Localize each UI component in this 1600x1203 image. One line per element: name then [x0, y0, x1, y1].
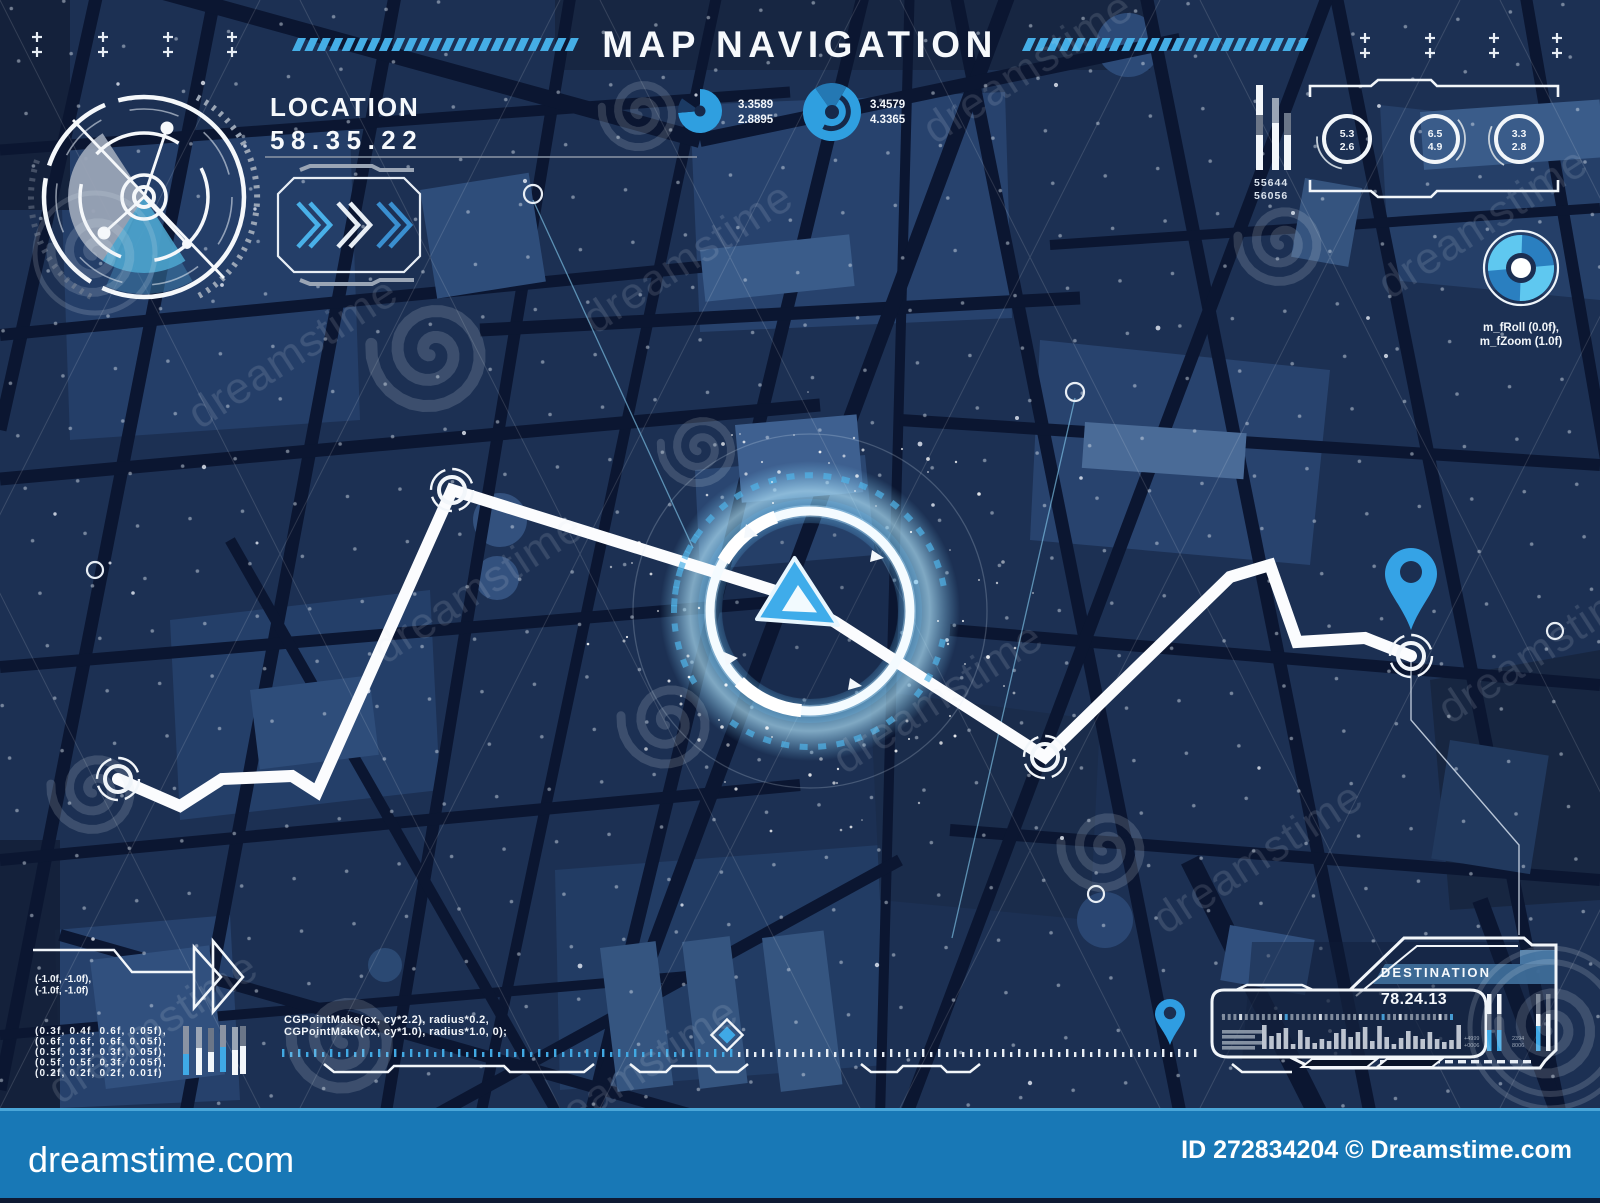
svg-text:3.4579: 3.4579 — [870, 99, 905, 111]
svg-text:(-1.0f, -1.0f): (-1.0f, -1.0f) — [35, 986, 88, 997]
svg-text:6.5: 6.5 — [1428, 128, 1443, 140]
svg-text:2.8895: 2.8895 — [738, 114, 774, 126]
svg-text:4.9: 4.9 — [1428, 141, 1443, 153]
svg-text:m_fZoom (1.0f): m_fZoom (1.0f) — [1480, 336, 1563, 348]
svg-text:58.35.22: 58.35.22 — [270, 125, 423, 155]
svg-text:3.3589: 3.3589 — [738, 99, 773, 111]
svg-text:56056: 56056 — [1254, 190, 1288, 202]
svg-text:MAP NAVIGATION: MAP NAVIGATION — [602, 24, 998, 65]
svg-text:5.3: 5.3 — [1340, 128, 1355, 140]
svg-text:ID 272834204 © Dreamstime.com: ID 272834204 © Dreamstime.com — [1181, 1136, 1572, 1164]
svg-text:4.3365: 4.3365 — [870, 114, 906, 126]
svg-text:55644: 55644 — [1254, 177, 1288, 189]
svg-text:dreamstime.com: dreamstime.com — [28, 1139, 294, 1180]
svg-text:(-1.0f, -1.0f),: (-1.0f, -1.0f), — [35, 974, 91, 985]
svg-text:2.6: 2.6 — [1340, 141, 1355, 153]
svg-text:2.8: 2.8 — [1512, 141, 1527, 153]
svg-text:DESTINATION: DESTINATION — [1381, 965, 1491, 980]
svg-text:m_fRoll (0.0f),: m_fRoll (0.0f), — [1483, 322, 1559, 334]
svg-text:78.24.13: 78.24.13 — [1381, 991, 1447, 1008]
svg-text:LOCATION: LOCATION — [270, 92, 420, 122]
svg-text:3.3: 3.3 — [1512, 128, 1527, 140]
